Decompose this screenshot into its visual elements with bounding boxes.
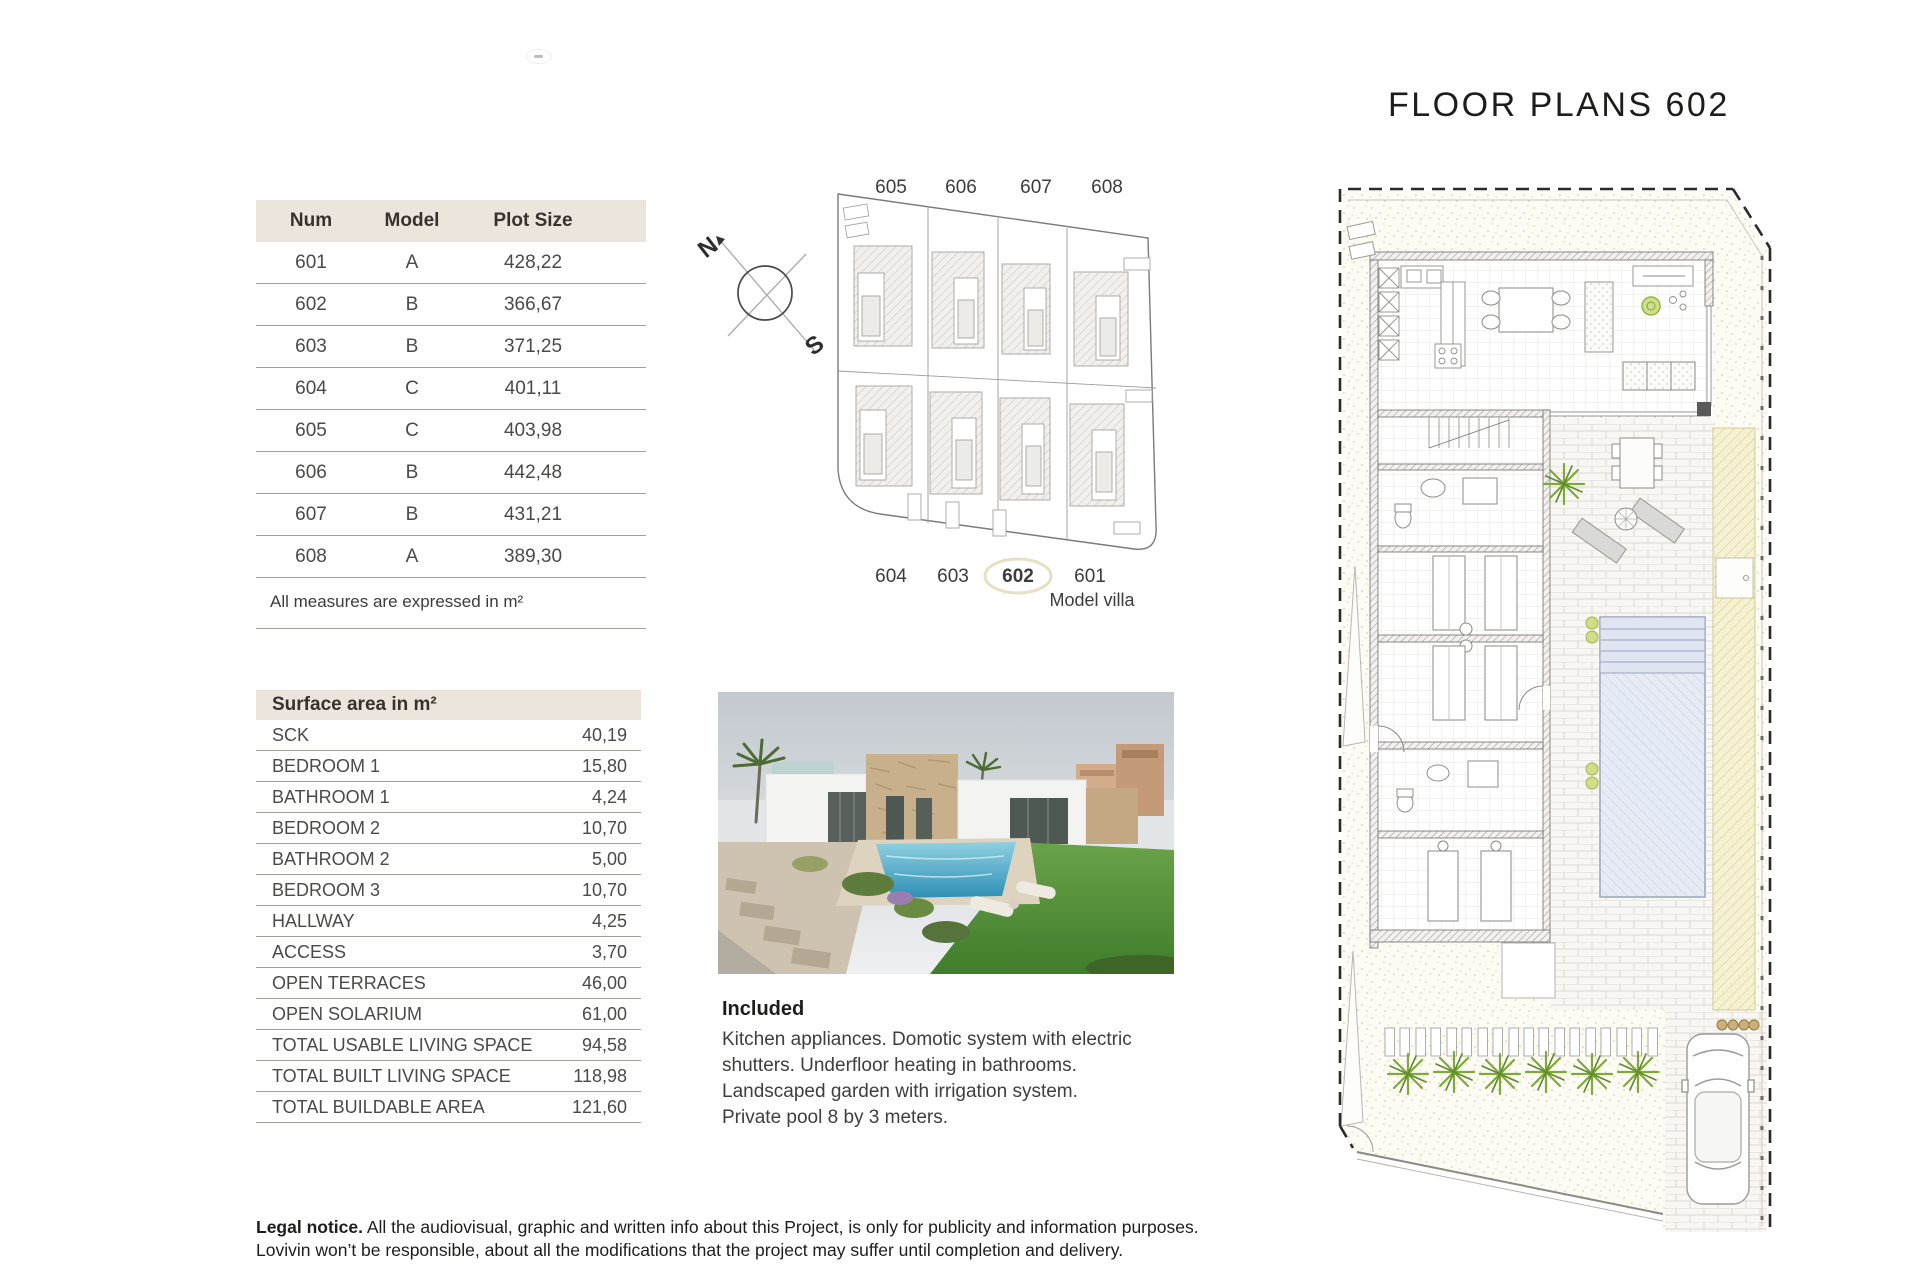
- plot-label-603: 603: [937, 566, 969, 587]
- pool: [876, 842, 1016, 898]
- table-row: BATHROOM 14,24: [256, 782, 641, 813]
- sofa: [1623, 362, 1695, 390]
- plot-label-601: 601: [1074, 566, 1106, 587]
- plots-table-header: Num Model Plot Size: [256, 200, 646, 242]
- page-title: FLOOR PLANS 602: [1388, 86, 1730, 125]
- site-plan-labels: 605 606 607 608 604 603 602 601 Model vi…: [875, 178, 1135, 610]
- surface-table-title: Surface area in m²: [256, 690, 641, 720]
- plot-label-602-highlighted: 602: [1002, 566, 1034, 587]
- floor-plan-drawing: [1333, 186, 1817, 1272]
- table-row: TOTAL BUILT LIVING SPACE118,98: [256, 1061, 641, 1092]
- parked-car: [1682, 1034, 1754, 1204]
- plots-table: Num Model Plot Size 601A428,22 602B366,6…: [256, 200, 646, 637]
- brochure-page: FLOOR PLANS 602 Num Model Plot Size 601A…: [0, 0, 1920, 1280]
- garden-pad: [1502, 943, 1555, 998]
- villa-photo: [718, 692, 1174, 974]
- table-row: 602B366,67: [256, 284, 646, 326]
- model-villa-label: Model villa: [1049, 590, 1135, 610]
- legal-notice-label: Legal notice.: [256, 1217, 363, 1237]
- table-row: 603B371,25: [256, 326, 646, 368]
- table-row: TOTAL USABLE LIVING SPACE94,58: [256, 1030, 641, 1061]
- plot-label-605: 605: [875, 178, 907, 198]
- table-row: TOTAL BUILDABLE AREA121,60: [256, 1092, 641, 1123]
- table-row: 608A389,30: [256, 536, 646, 578]
- included-section: Included Kitchen appliances. Domotic sys…: [722, 998, 1212, 1131]
- pool: [1600, 617, 1705, 897]
- legal-notice-text: All the audiovisual, graphic and written…: [256, 1217, 1199, 1260]
- table-row: BEDROOM 115,80: [256, 751, 641, 782]
- table-row: OPEN TERRACES46,00: [256, 968, 641, 999]
- table-row: OPEN SOLARIUM61,00: [256, 999, 641, 1030]
- glass-wall: [1550, 412, 1708, 416]
- plot-label-608: 608: [1091, 178, 1123, 198]
- glass-wall: [1707, 306, 1711, 406]
- compass-south-label: S: [800, 330, 829, 361]
- faded-logo-mark: [526, 49, 552, 64]
- table-row: BATHROOM 25,00: [256, 844, 641, 875]
- table-row: 605C403,98: [256, 410, 646, 452]
- terrace-plant: [1544, 464, 1584, 504]
- measures-note: All measures are expressed in m²: [256, 592, 646, 612]
- table-row: 604C401,11: [256, 368, 646, 410]
- table-row: HALLWAY4,25: [256, 906, 641, 937]
- table-row: BEDROOM 310,70: [256, 875, 641, 906]
- plot-label-606: 606: [945, 178, 977, 198]
- site-plan: 605 606 607 608 604 603 602 601 Model vi…: [828, 178, 1178, 618]
- table-row: 601A428,22: [256, 242, 646, 284]
- table-row: SCK40,19: [256, 720, 641, 751]
- plot-label-604: 604: [875, 566, 907, 587]
- compass-icon: N S: [692, 222, 842, 372]
- col-header-num: Num: [256, 210, 366, 232]
- col-header-plot-size: Plot Size: [458, 210, 608, 232]
- outdoor-shower-pad: [1716, 558, 1753, 598]
- included-heading: Included: [722, 998, 1212, 1021]
- col-header-model: Model: [366, 210, 458, 232]
- table-row: 606B442,48: [256, 452, 646, 494]
- table-row: BEDROOM 210,70: [256, 813, 641, 844]
- included-body: Kitchen appliances. Domotic system with …: [722, 1027, 1212, 1131]
- table-row: ACCESS3,70: [256, 937, 641, 968]
- wall-corner: [1697, 402, 1711, 416]
- kitchen-decor-plate: [1642, 297, 1660, 315]
- compass-north-label: N: [693, 232, 723, 264]
- surface-area-table: Surface area in m² SCK40,19 BEDROOM 115,…: [256, 690, 641, 1123]
- section-divider: [256, 628, 646, 629]
- plot-label-607: 607: [1020, 178, 1052, 198]
- side-solarium-strip: [1713, 428, 1755, 1010]
- legal-notice: Legal notice. All the audiovisual, graph…: [256, 1216, 1236, 1262]
- table-row: 607B431,21: [256, 494, 646, 536]
